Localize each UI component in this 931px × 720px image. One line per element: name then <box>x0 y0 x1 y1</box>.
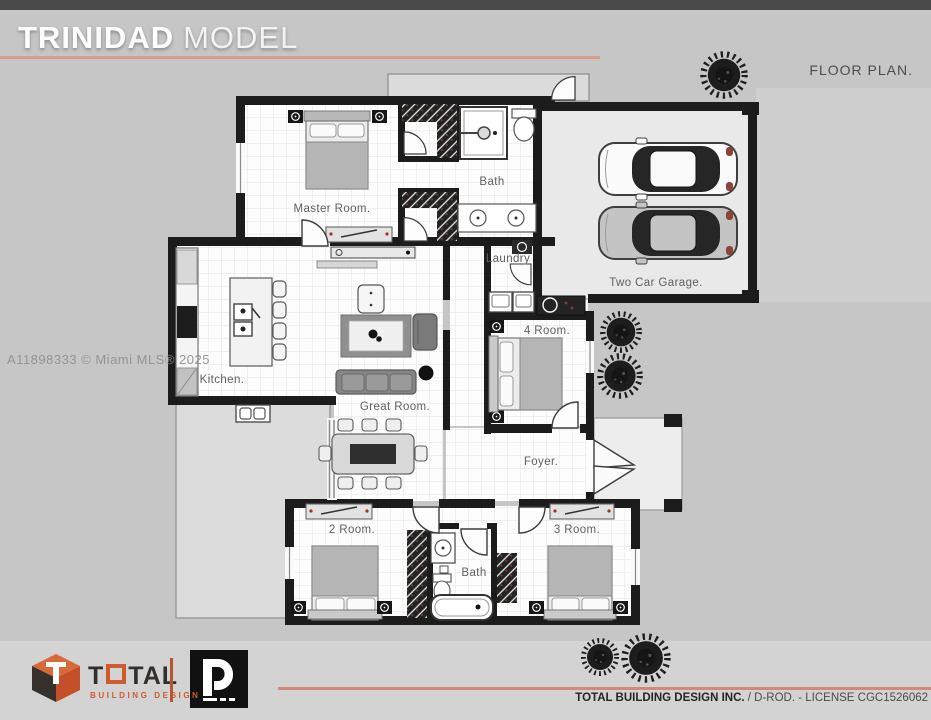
master-closet-1 <box>402 104 457 122</box>
side-square-table <box>358 285 384 313</box>
room-label-room2: 2 Room. <box>329 524 375 536</box>
driveway <box>756 88 931 302</box>
bathtub <box>431 595 493 620</box>
toilet <box>512 109 536 141</box>
room-label-kitchen: Kitchen. <box>200 374 245 386</box>
room2-bed <box>308 546 382 620</box>
armchair <box>413 314 437 350</box>
sofa <box>336 370 416 394</box>
room-label-foyer: Foyer. <box>524 456 558 468</box>
kitchen-island <box>230 278 272 366</box>
bush-icon <box>703 54 744 95</box>
total-logo-subtitle: BUILDING DESIGN <box>90 691 201 700</box>
round-side-table <box>419 366 434 381</box>
sound-bar <box>317 261 377 268</box>
master-closet-2b <box>437 208 457 241</box>
master-dresser <box>326 227 392 242</box>
window-room2-left <box>285 547 294 579</box>
car-gray <box>599 202 737 264</box>
credit-license: / D-ROD. - LICENSE CGC1526062 <box>745 692 928 704</box>
stove <box>177 306 197 338</box>
credit-company: TOTAL BUILDING DESIGN INC. <box>575 692 744 704</box>
room2-wardrobe <box>407 530 427 618</box>
brand-letter-t: T <box>88 662 104 690</box>
top-bar <box>0 0 931 10</box>
room3-bed <box>544 546 616 620</box>
mls-watermark: A11898333 © Miami MLS® 2025 <box>7 352 210 367</box>
bush-icon <box>603 314 639 350</box>
master-closet-2 <box>402 192 457 208</box>
bush-icon <box>600 356 640 396</box>
double-vanity <box>458 204 536 232</box>
room-label-great-room: Great Room. <box>360 401 430 413</box>
floor-plan-label: FLOOR PLAN. <box>809 62 913 78</box>
total-logo-text: TTAL <box>88 662 178 691</box>
media-console <box>331 247 415 258</box>
bush-icon <box>625 637 668 680</box>
bush-icon <box>584 641 617 674</box>
room-label-laundry: Laundry <box>486 253 530 265</box>
floor-corridor <box>450 244 484 426</box>
credit-line: TOTAL BUILDING DESIGN INC. / D-ROD. - LI… <box>575 692 928 704</box>
window-master-left <box>236 143 245 193</box>
logo-divider <box>170 658 173 702</box>
patio-sink-counter <box>236 405 270 422</box>
master-closet-1b <box>437 122 457 158</box>
credit-underline <box>278 687 931 690</box>
room-label-room4: 4 Room. <box>524 325 570 337</box>
room-label-master-bath: Bath <box>479 176 504 188</box>
nook-vanity <box>537 296 585 315</box>
coffee-table-rug <box>341 315 411 357</box>
page-title: TRINIDADMODEL <box>18 20 298 56</box>
room2-dresser <box>306 504 372 519</box>
flyer-page: TRINIDADMODEL FLOOR PLAN. A11898333 © Mi… <box>0 0 931 720</box>
window-room3-right <box>631 549 640 585</box>
title-underline <box>0 56 600 59</box>
window-room4-right <box>586 341 594 373</box>
fridge <box>177 250 197 284</box>
car-white <box>599 138 737 200</box>
title-primary: TRINIDAD <box>18 20 174 55</box>
title-secondary: MODEL <box>183 20 298 55</box>
shower <box>460 107 507 159</box>
room-label-room3: 3 Room. <box>554 524 600 536</box>
room-label-garage: Two Car Garage. <box>609 277 703 289</box>
room-label-master: Master Room. <box>293 203 370 215</box>
room3-dresser <box>550 504 614 519</box>
room3-wardrobe <box>497 553 517 603</box>
total-logo-icon <box>32 654 80 702</box>
brand-letter-o-square <box>106 664 126 684</box>
floor-foyer <box>446 428 587 501</box>
room-label-bath2: Bath <box>461 567 486 579</box>
